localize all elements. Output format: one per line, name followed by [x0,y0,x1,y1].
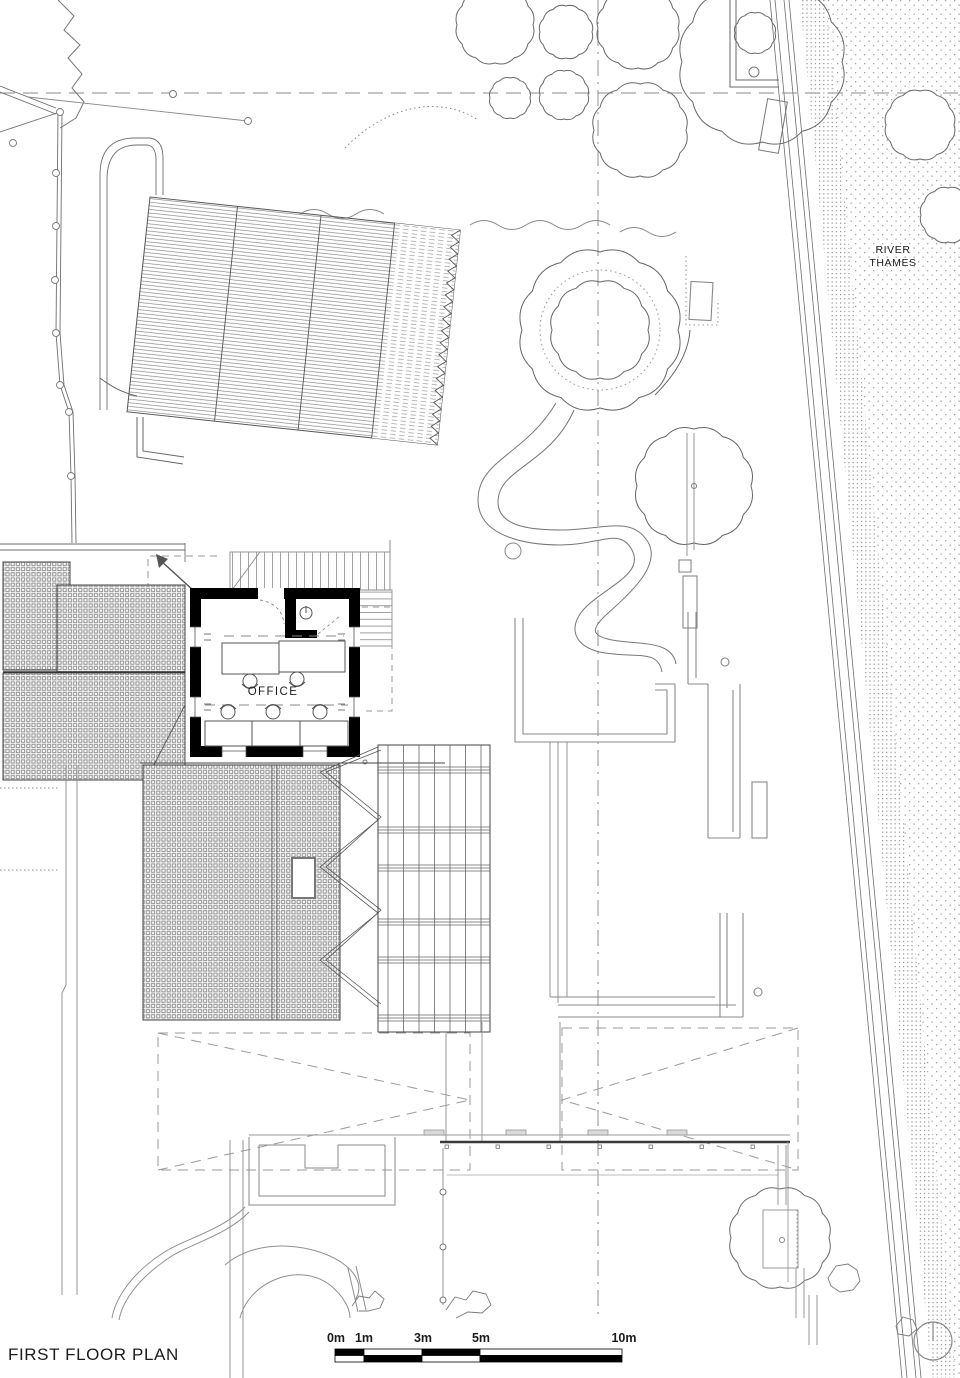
scale-tick-10m: 10m [611,1331,636,1345]
river-label-line2: THAMES [869,257,916,269]
scale-bar: 0m 1m 3m 5m 10m [327,1331,637,1362]
curved-garden-paths [112,1207,366,1320]
scale-tick-3m: 3m [414,1331,432,1345]
river-label-line1: RIVER [875,244,910,256]
rock-outlines [352,1264,917,1336]
south-wing-roofs [140,745,490,1142]
floor-plan-canvas: RIVER THAMES [0,0,960,1378]
scale-tick-0m: 0m [327,1331,345,1345]
striped-roof [378,745,490,1032]
first-floor-plan-sheet: RIVER THAMES [0,0,960,1378]
serpentine-path [478,403,676,672]
hedge-wave [470,221,610,230]
scale-tick-1m: 1m [355,1331,373,1345]
main-house-roof [127,197,460,445]
office-room-label: OFFICE [248,686,299,698]
hedge-wave [620,228,676,237]
garden-path-dotted [345,107,478,148]
jetty-structures [730,0,787,153]
circular-planting [520,250,753,545]
scale-tick-5m: 5m [472,1331,490,1345]
sheet-title: FIRST FLOOR PLAN [8,1345,179,1364]
garden-wall [249,1130,790,1305]
garden-terrace [515,256,767,1017]
skylight [292,858,315,898]
